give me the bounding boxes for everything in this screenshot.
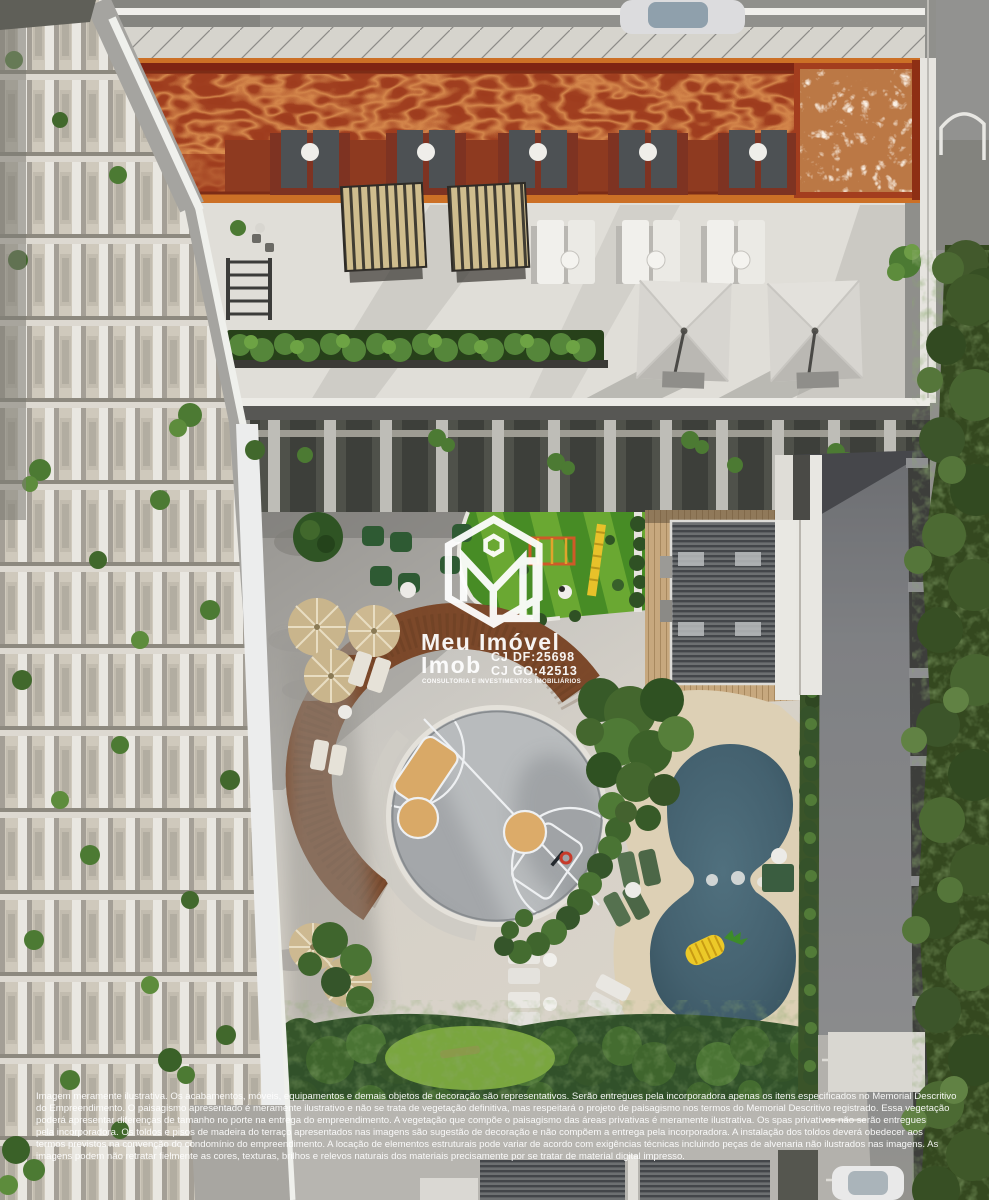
svg-text:CJ DF:25698: CJ DF:25698 [491,650,575,664]
svg-text:Imob: Imob [421,652,482,678]
svg-text:CJ GO:42513: CJ GO:42513 [491,664,578,678]
svg-text:CONSULTORIA E INVESTIMENTOS IM: CONSULTORIA E INVESTIMENTOS IMOBILIÁRIOS [422,678,581,685]
